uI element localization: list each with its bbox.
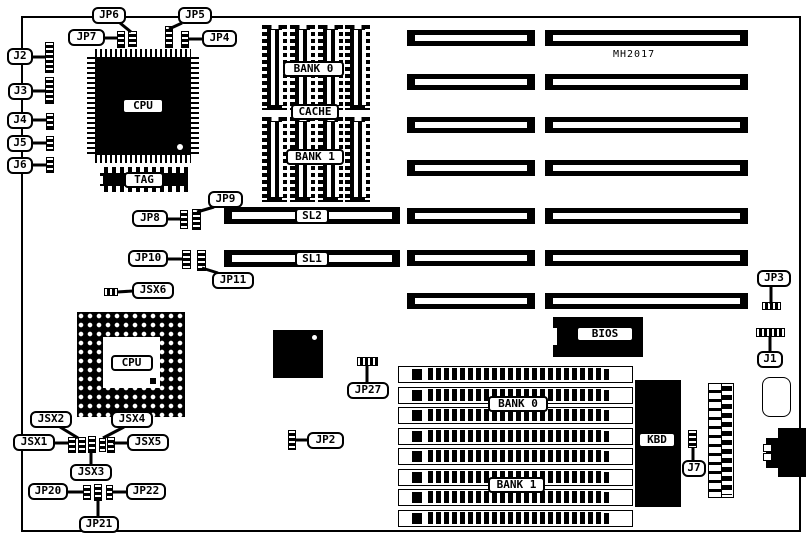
jumper-j4-pins bbox=[46, 113, 54, 130]
isa-slot-r6c1 bbox=[407, 250, 535, 266]
cache-chip-bank1-4 bbox=[345, 117, 370, 202]
callout-j1: J1 bbox=[757, 351, 783, 368]
jumper-jp3-pins bbox=[762, 302, 781, 310]
jumper-jp11-pins bbox=[197, 250, 206, 271]
slot-sl2: SL2 bbox=[224, 207, 400, 224]
callout-j3: J3 bbox=[8, 83, 33, 100]
isa-slot-r4c1 bbox=[407, 160, 535, 176]
callout-j4: J4 bbox=[7, 112, 33, 129]
jumper-jp21-pins bbox=[94, 484, 102, 501]
slot-sl1: SL1 bbox=[224, 250, 400, 267]
cpu2-pin1-marker bbox=[150, 378, 156, 384]
cpu1-pins-left bbox=[87, 57, 95, 155]
callout-jsx1: JSX1 bbox=[13, 434, 55, 451]
isa-slot-r1c1 bbox=[407, 30, 535, 46]
jumper-jp4-pins bbox=[181, 31, 189, 48]
chipset-pin1-dot bbox=[312, 335, 317, 340]
tag-label: TAG bbox=[124, 172, 164, 188]
isa-slot-r1c2 bbox=[545, 30, 748, 46]
cache-label-bank-1: BANK 1 bbox=[286, 149, 344, 165]
jumper-jp7-pins bbox=[117, 31, 125, 48]
pin-header-right-column bbox=[722, 386, 732, 495]
isa-slot-r7c2 bbox=[545, 293, 748, 309]
jumper-jsx-cluster-b bbox=[78, 437, 86, 453]
callout-j6: J6 bbox=[7, 157, 33, 174]
simm-label-bank-1: BANK 1 bbox=[488, 477, 545, 493]
callout-jsx6: JSX6 bbox=[132, 282, 174, 299]
callout-jsx5: JSX5 bbox=[127, 434, 169, 451]
jumper-jp2-pins bbox=[288, 430, 296, 450]
cache-label-cache: CACHE bbox=[291, 104, 339, 120]
cpu2-center: CPU bbox=[103, 337, 160, 388]
kbd-label: KBD bbox=[638, 432, 676, 448]
cache-chip-bank0-4 bbox=[345, 25, 370, 110]
board-model-text: MH2017 bbox=[613, 49, 655, 60]
callout-jsx3: JSX3 bbox=[70, 464, 112, 481]
isa-slot-r7c1 bbox=[407, 293, 535, 309]
jumper-jp8-pins bbox=[180, 210, 188, 229]
isa-slot-r3c2 bbox=[545, 117, 748, 133]
callout-jp20: JP20 bbox=[28, 483, 68, 500]
callout-jp8: JP8 bbox=[132, 210, 168, 227]
callout-j2: J2 bbox=[7, 48, 33, 65]
jumper-jsx6-pins bbox=[104, 288, 118, 296]
motherboard-diagram: MH2017SL2SL1BANK 0CACHEBANK 1BANK 0BANK … bbox=[0, 0, 807, 541]
cpu1-label: CPU bbox=[122, 98, 164, 114]
cpu1-pins-top bbox=[95, 49, 191, 57]
jumper-j1-pins bbox=[756, 328, 785, 337]
jumper-jp20-pins bbox=[83, 485, 91, 500]
isa-slot-r3c1 bbox=[407, 117, 535, 133]
jumper-j3-pins bbox=[45, 77, 54, 104]
cpu2-label: CPU bbox=[111, 355, 153, 371]
isa-slot-r2c1 bbox=[407, 74, 535, 90]
simm-label-bank-0: BANK 0 bbox=[488, 396, 548, 412]
simm-slot-1 bbox=[398, 366, 633, 383]
jumper-jp5-pins bbox=[165, 26, 173, 48]
slot-label-sl2: SL2 bbox=[295, 208, 329, 224]
jumper-jsx-cluster-c bbox=[88, 436, 96, 453]
chip-kbd: KBD bbox=[635, 380, 681, 507]
simm-slot-8 bbox=[398, 510, 633, 527]
chip-cpu2: CPU bbox=[77, 312, 185, 417]
callout-jsx2: JSX2 bbox=[30, 411, 72, 428]
cpu1-pins-bottom bbox=[95, 155, 191, 163]
tag-notch bbox=[98, 176, 103, 184]
jumper-jp22-pins bbox=[106, 485, 113, 500]
jumper-j7-pins bbox=[688, 430, 697, 448]
jumper-jp6-pins bbox=[128, 31, 137, 47]
jumper-j6-pins bbox=[46, 157, 54, 173]
callout-j5: J5 bbox=[7, 135, 33, 152]
simm-slot-5 bbox=[398, 448, 633, 465]
chip-tag: TAG bbox=[100, 167, 188, 192]
callout-jp6: JP6 bbox=[92, 7, 126, 24]
callout-jp4: JP4 bbox=[202, 30, 237, 47]
callout-jsx4: JSX4 bbox=[111, 411, 153, 428]
callout-jp21: JP21 bbox=[79, 516, 119, 533]
pin-header-connector bbox=[708, 383, 734, 498]
din-notch-top bbox=[763, 444, 772, 452]
isa-slot-r4c2 bbox=[545, 160, 748, 176]
bios-label: BIOS bbox=[576, 326, 634, 342]
pin-header-left-column bbox=[709, 384, 722, 497]
chip-unlabeled-qfp bbox=[273, 330, 323, 378]
isa-slot-r5c2 bbox=[545, 208, 748, 224]
chip-cpu1: CPU bbox=[87, 49, 199, 163]
callout-jp5: JP5 bbox=[178, 7, 212, 24]
jumper-j5-pins bbox=[46, 136, 54, 151]
cache-label-bank-0: BANK 0 bbox=[283, 61, 344, 77]
din-notch-bottom bbox=[763, 453, 772, 461]
callout-jp10: JP10 bbox=[128, 250, 168, 267]
isa-slot-r5c1 bbox=[407, 208, 535, 224]
callout-jp27: JP27 bbox=[347, 382, 389, 399]
bios-notch bbox=[553, 328, 557, 345]
cache-chip-bank1-1 bbox=[262, 117, 287, 202]
chip-bios: BIOS bbox=[553, 317, 643, 357]
simm-slot-4 bbox=[398, 428, 633, 445]
keyboard-din-connector bbox=[778, 428, 806, 477]
callout-jp7: JP7 bbox=[68, 29, 105, 46]
slot-label-sl1: SL1 bbox=[295, 251, 329, 267]
jumper-j2-pins bbox=[45, 42, 54, 73]
jumper-jp27-pins bbox=[357, 357, 378, 366]
battery-outline bbox=[762, 377, 791, 417]
jumper-jp9-pins bbox=[192, 209, 201, 230]
callout-j7: J7 bbox=[682, 460, 706, 477]
callout-jp9: JP9 bbox=[208, 191, 243, 208]
jumper-jp10-pins bbox=[182, 250, 191, 269]
callout-jp3: JP3 bbox=[757, 270, 791, 287]
cpu1-pins-right bbox=[191, 57, 199, 155]
cpu1-pin1-dot bbox=[177, 144, 183, 150]
jumper-jsx-cluster-d bbox=[99, 438, 106, 452]
callout-jp2: JP2 bbox=[307, 432, 344, 449]
isa-slot-r2c2 bbox=[545, 74, 748, 90]
jumper-jsx-cluster-a bbox=[68, 437, 76, 453]
jumper-jsx-cluster-e bbox=[107, 437, 115, 453]
isa-slot-r6c2 bbox=[545, 250, 748, 266]
callout-jp11: JP11 bbox=[212, 272, 254, 289]
callout-jp22: JP22 bbox=[126, 483, 166, 500]
